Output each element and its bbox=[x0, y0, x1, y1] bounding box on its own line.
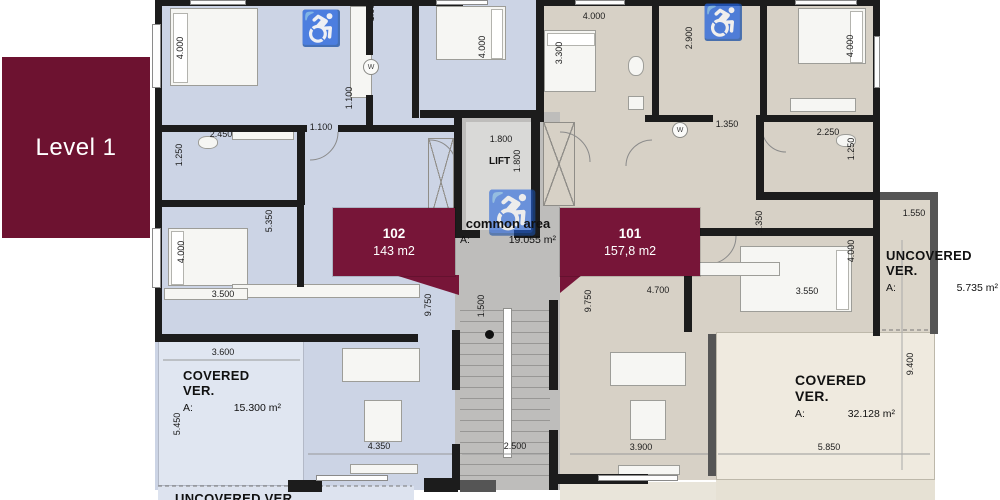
dimension-label: 1.100 bbox=[310, 122, 333, 132]
dimension-label: 5.350 bbox=[264, 210, 274, 233]
bed bbox=[436, 6, 506, 60]
window bbox=[598, 475, 678, 481]
window bbox=[152, 228, 161, 288]
stair-post bbox=[485, 330, 494, 339]
washer-letter: W bbox=[368, 64, 375, 71]
wall bbox=[758, 115, 880, 122]
dimension-label: 5.450 bbox=[172, 413, 182, 436]
stair-rail bbox=[503, 308, 512, 458]
window bbox=[436, 0, 488, 5]
common-area-name: common area bbox=[456, 216, 560, 231]
dimension-label: 3.600 bbox=[212, 347, 235, 357]
dimension-label: 4.000 bbox=[583, 11, 606, 21]
wall bbox=[876, 192, 938, 200]
dimension-label: 4.000 bbox=[845, 35, 855, 58]
dimension-label: 4.700 bbox=[647, 285, 670, 295]
wall bbox=[645, 115, 713, 122]
wall bbox=[366, 95, 373, 130]
uncovered-veranda-bottom-label: UNCOVERED VER. bbox=[175, 491, 296, 500]
tv-bench bbox=[350, 464, 418, 474]
common-area-value: 19.055 m² bbox=[509, 234, 556, 246]
coffee-table bbox=[630, 400, 666, 440]
dimension-label: 1.800 bbox=[490, 134, 513, 144]
bed bbox=[740, 246, 852, 312]
washer-letter: W bbox=[677, 127, 684, 134]
wall bbox=[873, 196, 880, 336]
dimension-label: 3.500 bbox=[212, 289, 235, 299]
dimension-label: 1.000 bbox=[366, 0, 376, 21]
sofa bbox=[610, 352, 686, 386]
dimension-label: 5.850 bbox=[818, 442, 841, 452]
dimension-label: 4.350 bbox=[368, 441, 391, 451]
wheelchair-icon: ♿ bbox=[300, 12, 342, 46]
wall bbox=[873, 0, 880, 198]
wall bbox=[762, 192, 880, 200]
dimension-label: 3.550 bbox=[796, 286, 819, 296]
dimension-label: 4.000 bbox=[477, 36, 487, 59]
unit-101-number: 101 bbox=[619, 226, 642, 241]
shaft-right bbox=[543, 122, 575, 206]
covered-veranda-right-value: 32.128 m² bbox=[848, 408, 895, 420]
unit-101-area-value: 157,8 m2 bbox=[604, 244, 656, 258]
window bbox=[874, 36, 880, 88]
dimension-label: 2.450 bbox=[210, 129, 233, 139]
covered-veranda-right-label: COVERED VER. A: 32.128 m² bbox=[795, 372, 895, 420]
unit-102-area-value: 143 m2 bbox=[373, 244, 415, 258]
floor-plan-page: Level 1 bbox=[0, 0, 1000, 500]
washing-machine-icon: W bbox=[672, 122, 688, 138]
uncovered-veranda-bottom-name: UNCOVERED VER. bbox=[175, 491, 296, 500]
window bbox=[575, 0, 625, 5]
level-badge-label: Level 1 bbox=[36, 134, 117, 162]
window bbox=[795, 0, 857, 5]
bed bbox=[544, 30, 596, 92]
dimension-label: 1.500 bbox=[476, 295, 486, 318]
lift-label: LIFT bbox=[489, 156, 510, 167]
washing-machine-icon: W bbox=[363, 59, 379, 75]
dimension-label: 2.900 bbox=[684, 27, 694, 50]
sofa bbox=[342, 348, 420, 382]
wall bbox=[460, 480, 496, 492]
wall bbox=[155, 334, 418, 342]
covered-veranda-right bbox=[716, 480, 935, 500]
window bbox=[152, 24, 161, 88]
covered-veranda-left-name: COVERED VER. bbox=[183, 368, 281, 398]
dimension-label: 4.000 bbox=[846, 240, 856, 263]
uncovered-veranda-right-name: UNCOVERED VER. bbox=[886, 248, 998, 278]
dimension-label: 9.750 bbox=[423, 294, 433, 317]
uncovered-veranda-right-prefix: A: bbox=[886, 282, 896, 294]
dimension-label: 2.500 bbox=[504, 441, 527, 451]
wall bbox=[162, 125, 307, 132]
wall bbox=[652, 0, 659, 122]
dimension-label: 4.000 bbox=[175, 37, 185, 60]
kitchen-counter bbox=[232, 284, 420, 298]
uncovered-veranda-right-value: 5.735 m² bbox=[957, 282, 998, 294]
dimension-label: 1.100 bbox=[344, 87, 354, 110]
dimension-label: 4.000 bbox=[176, 241, 186, 264]
uncovered-veranda-right-label: UNCOVERED VER. A: 5.735 m² bbox=[886, 248, 998, 294]
dimension-label: 2.250 bbox=[817, 127, 840, 137]
coffee-table bbox=[364, 400, 402, 442]
covered-veranda-left-label: COVERED VER. A: 15.300 m² bbox=[183, 368, 281, 414]
dimension-label: 1.250 bbox=[846, 138, 856, 161]
level-badge: Level 1 bbox=[2, 57, 150, 238]
vanity bbox=[790, 98, 856, 112]
window bbox=[316, 475, 388, 481]
dimension-label: 1.250 bbox=[174, 144, 184, 167]
unit-102-number: 102 bbox=[383, 226, 406, 241]
wall bbox=[338, 125, 456, 132]
common-area-label: common area A: 19.055 m² bbox=[456, 216, 560, 246]
wheelchair-icon: ♿ bbox=[702, 6, 744, 40]
dimension-label: 1.800 bbox=[512, 150, 522, 173]
unit-102-label: 102 143 m2 bbox=[333, 208, 455, 276]
wall bbox=[756, 115, 764, 200]
unit-101-label: 101 157,8 m2 bbox=[560, 208, 700, 276]
closet bbox=[164, 288, 248, 300]
dimension-label: 3.900 bbox=[630, 442, 653, 452]
wall bbox=[297, 207, 304, 287]
wall bbox=[688, 228, 880, 236]
wall bbox=[452, 330, 460, 390]
beige-living-bottom bbox=[560, 482, 716, 500]
wall bbox=[760, 0, 767, 118]
lift-shaft-wall bbox=[454, 110, 542, 118]
dimension-label: 9.400 bbox=[905, 353, 915, 376]
bed bbox=[798, 8, 866, 64]
covered-veranda-right-name: COVERED VER. bbox=[795, 372, 895, 404]
common-area-prefix: A: bbox=[460, 234, 470, 246]
dimension-label: 5.350 bbox=[754, 211, 764, 234]
wall bbox=[162, 200, 304, 207]
wall bbox=[424, 478, 458, 492]
covered-veranda-left-value: 15.300 m² bbox=[234, 402, 281, 414]
wall bbox=[549, 300, 558, 390]
wall bbox=[536, 0, 544, 122]
wall bbox=[412, 0, 419, 118]
covered-veranda-left-prefix: A: bbox=[183, 402, 193, 414]
wall bbox=[297, 125, 305, 205]
dimension-label: 1.550 bbox=[903, 208, 926, 218]
window bbox=[190, 0, 246, 5]
covered-veranda-right-prefix: A: bbox=[795, 408, 805, 420]
dimension-label: 1.350 bbox=[716, 119, 739, 129]
wall bbox=[708, 334, 716, 476]
dimension-label: 9.750 bbox=[583, 290, 593, 313]
toilet bbox=[628, 56, 644, 76]
sink bbox=[628, 96, 644, 110]
dimension-label: 3.300 bbox=[554, 42, 564, 65]
